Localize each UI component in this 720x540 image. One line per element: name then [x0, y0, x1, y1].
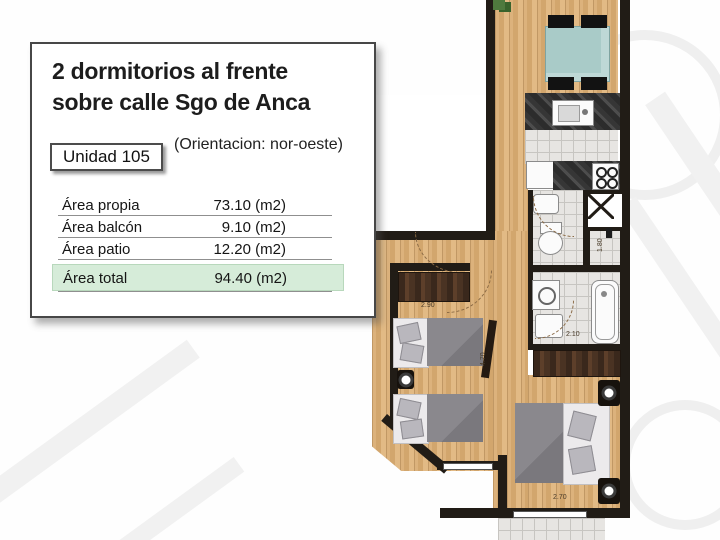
nightstand-lamp-icon	[598, 380, 620, 406]
area-value: 94.40 (m2)	[169, 270, 287, 287]
table-row-total: Área total 94.40 (m2)	[52, 264, 344, 291]
area-value: 73.10 (m2)	[168, 197, 286, 214]
table-row: Área patio 12.20 (m2)	[58, 238, 332, 260]
dining-table	[545, 26, 610, 82]
area-label: Área balcón	[62, 219, 142, 236]
sink-icon	[552, 100, 594, 126]
area-label: Área patio	[62, 241, 130, 258]
area-label: Área propia	[62, 197, 140, 214]
dimension-label: 1.80	[597, 238, 604, 252]
balcony	[370, 95, 495, 240]
chair-icon	[581, 15, 607, 28]
table-row: Área balcón 9.10 (m2)	[58, 216, 332, 238]
bathtub-icon	[591, 280, 619, 344]
chair-icon	[581, 77, 607, 90]
chair-icon	[548, 77, 574, 90]
title-line1: 2 dormitorios al frente	[52, 56, 357, 87]
area-label: Área total	[63, 270, 127, 287]
unit-badge: Unidad 105	[50, 143, 163, 171]
dimension-label: 2.70	[553, 494, 567, 501]
wardrobe	[533, 350, 621, 377]
window	[513, 511, 587, 518]
bed-single	[393, 318, 483, 366]
bed-single	[393, 394, 483, 442]
area-value: 12.20 (m2)	[168, 241, 286, 258]
dimension-label: 2.90	[421, 302, 435, 309]
wall	[620, 0, 630, 518]
door-handle-icon	[606, 228, 612, 238]
window	[443, 463, 493, 470]
stove-icon	[592, 163, 619, 190]
shaft-x-icon	[584, 190, 626, 231]
dimension-label: 4.70	[480, 352, 487, 366]
watermark-stroke	[619, 197, 720, 424]
info-panel: 2 dormitorios al frente sobre calle Sgo …	[30, 42, 376, 318]
watermark-stroke	[0, 340, 200, 522]
kitchen-floor-strip	[495, 95, 528, 231]
nightstand-lamp-icon	[397, 370, 414, 389]
dimension-label: 2.10	[566, 331, 580, 338]
title-line2: sobre calle Sgo de Anca	[52, 87, 357, 118]
wardrobe	[398, 272, 470, 302]
kitchen-cabinet	[526, 161, 555, 189]
table-row: Área propia 73.10 (m2)	[58, 194, 332, 216]
plant-icon	[493, 0, 505, 10]
nightstand-lamp-icon	[598, 478, 620, 504]
orientation-label: (Orientacion: nor-oeste)	[174, 136, 343, 154]
bed-double	[515, 403, 608, 483]
watermark-stroke	[56, 457, 245, 540]
chair-icon	[548, 15, 574, 28]
listing-title: 2 dormitorios al frente sobre calle Sgo …	[52, 56, 357, 118]
watermark-ring	[620, 400, 720, 530]
wall	[528, 265, 620, 272]
area-table: Área propia 73.10 (m2) Área balcón 9.10 …	[32, 194, 374, 292]
area-value: 9.10 (m2)	[168, 219, 286, 236]
real-estate-listing-image: 1.80 2.10 2.70 2.90	[0, 0, 720, 540]
patio-tile-floor	[498, 518, 605, 540]
floor-plan: 1.80 2.10 2.70 2.90	[385, 0, 630, 540]
table-separator	[58, 291, 332, 292]
kitchen-tile-floor	[525, 128, 618, 164]
